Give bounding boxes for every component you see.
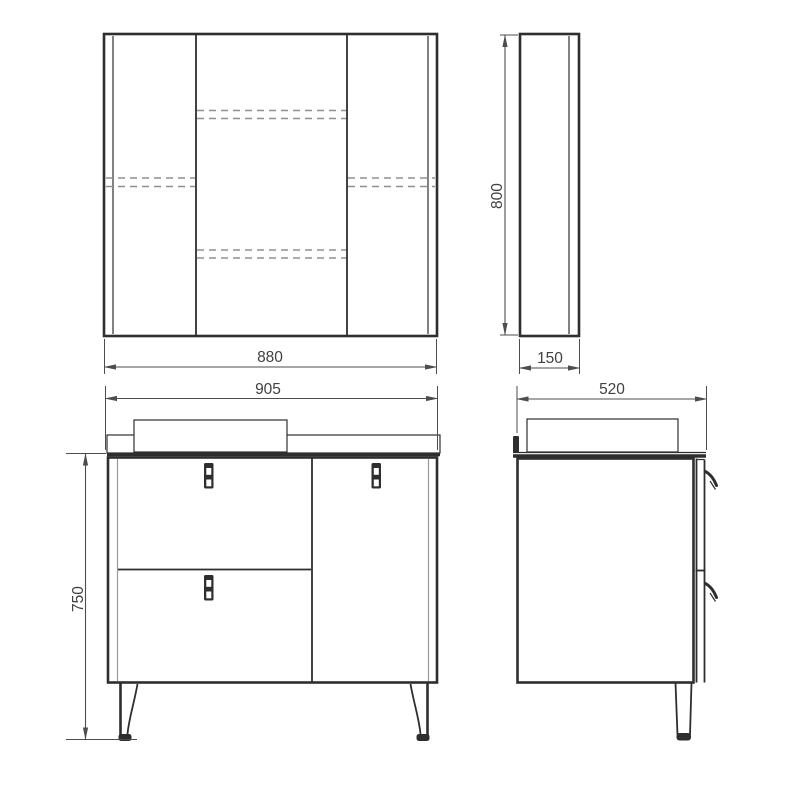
handle-slot (206, 592, 211, 599)
side-leg (676, 683, 692, 741)
side-handle-hook-bottom (706, 584, 717, 602)
handle-slot (374, 480, 379, 487)
mirror-side-view: 800 150 (489, 34, 580, 374)
mirror-front-view: 880 (104, 34, 437, 374)
dimension-label-mirror-width: 880 (257, 349, 283, 366)
handle-slot (206, 480, 211, 487)
dimension-label-mirror-depth: 150 (537, 350, 563, 367)
front-leg-left (119, 683, 138, 741)
leg-foot (677, 733, 692, 741)
drawer-handle-top (204, 463, 214, 489)
front-leg-right (411, 683, 430, 741)
door-handle (372, 463, 382, 489)
dimension-label-mirror-height: 800 (489, 183, 506, 209)
vanity-side-basin (527, 419, 678, 452)
vanity-front-view: 905 750 (66, 381, 440, 741)
dimension-mirror-depth: 150 (520, 339, 580, 374)
dimension-label-vanity-width: 905 (255, 381, 281, 398)
mirror-front-outline (104, 34, 437, 336)
drawing-canvas: 880 800 150 (0, 0, 800, 800)
mirror-side-outline (520, 34, 579, 336)
vanity-side-body (518, 459, 694, 683)
drawer-front-strip (696, 459, 706, 683)
vanity-basin (134, 420, 287, 452)
dimension-mirror-width: 880 (105, 339, 437, 374)
backsplash-tab (513, 436, 519, 453)
handle-slot (206, 580, 211, 587)
leg-inner-curve (128, 684, 138, 734)
side-handle-hook-top (706, 472, 717, 490)
leg-edge-left (676, 683, 678, 735)
leg-edge-right (690, 683, 692, 735)
vanity-side-view: 520 (513, 381, 717, 741)
handle-slot (374, 468, 379, 475)
leg-foot (417, 734, 430, 741)
dimension-label-vanity-height: 750 (70, 586, 87, 612)
dimension-mirror-height: 800 (489, 35, 518, 335)
handle-slot (206, 468, 211, 475)
leg-inner-curve (411, 684, 421, 734)
dimension-label-vanity-depth: 520 (599, 381, 625, 398)
technical-drawing: 880 800 150 (0, 0, 800, 800)
drawer-handle-bottom (204, 575, 214, 601)
